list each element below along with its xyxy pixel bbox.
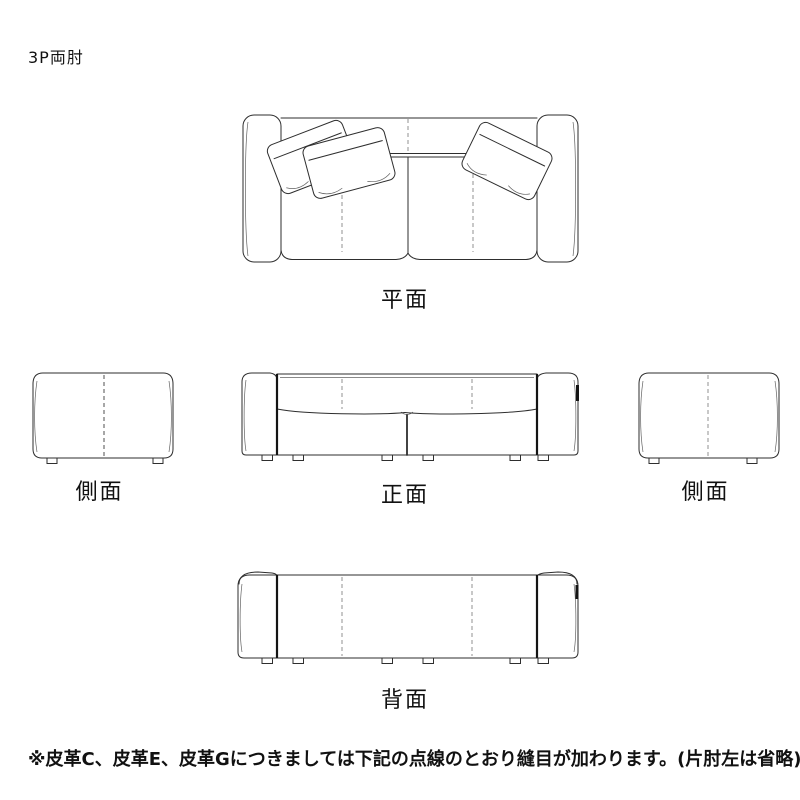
left-armrest [242,373,277,455]
side-right-view-label: 側面 [681,474,729,506]
foot [510,658,521,664]
back-view: 背面 [230,568,580,714]
feet [262,455,549,461]
foot [538,455,549,461]
front-view-label: 正面 [381,477,429,509]
side-left-view-label: 側面 [75,474,123,506]
back-outline [238,575,578,658]
foot [293,455,304,461]
side-left-view: 側面 [22,362,177,506]
foot [382,658,393,664]
side-left-view-drawing [22,362,177,467]
left-seat-front-edge [281,250,408,260]
back-view-drawing [230,568,580,673]
right-armrest [537,373,578,455]
technical-drawing-page: { "theme": { "background": "#ffffff", "l… [0,0,800,800]
feet [262,658,549,664]
side-outline [33,373,173,458]
side-outline [639,373,779,458]
back-view-label: 背面 [381,682,429,714]
right-armrest-outline [537,373,578,455]
front-view: 正面 [230,358,580,509]
front-view-drawing [230,358,580,468]
foot [423,455,434,461]
foot [538,658,549,664]
left-armrest-outline [242,373,277,455]
right-armrest-outline [537,115,578,262]
foot [382,455,393,461]
foot [649,458,659,464]
foot [262,455,273,461]
foot [423,658,434,664]
plan-view-drawing [230,100,580,270]
plan-view: 平面 [230,100,580,314]
foot [47,458,57,464]
plan-view-label: 平面 [381,282,429,314]
page-title: 3P両肘 [28,44,84,68]
left-armrest [243,115,281,262]
foot [153,458,163,464]
foot [747,458,757,464]
backrest [277,374,537,415]
backrest-bottom-right [405,409,537,414]
foot [293,658,304,664]
side-right-view: 側面 [628,362,783,506]
leather-stitch-footnote: ※皮革C、皮革E、皮革Gにつきましては下記の点線のとおり縫目が加わります。(片肘… [28,748,788,771]
foot [510,455,521,461]
foot [262,658,273,664]
seat-front [277,415,537,455]
left-armrest-outline [243,115,281,262]
side-right-view-drawing [628,362,783,467]
right-armrest [537,115,578,262]
backrest-bottom-left [277,409,405,414]
